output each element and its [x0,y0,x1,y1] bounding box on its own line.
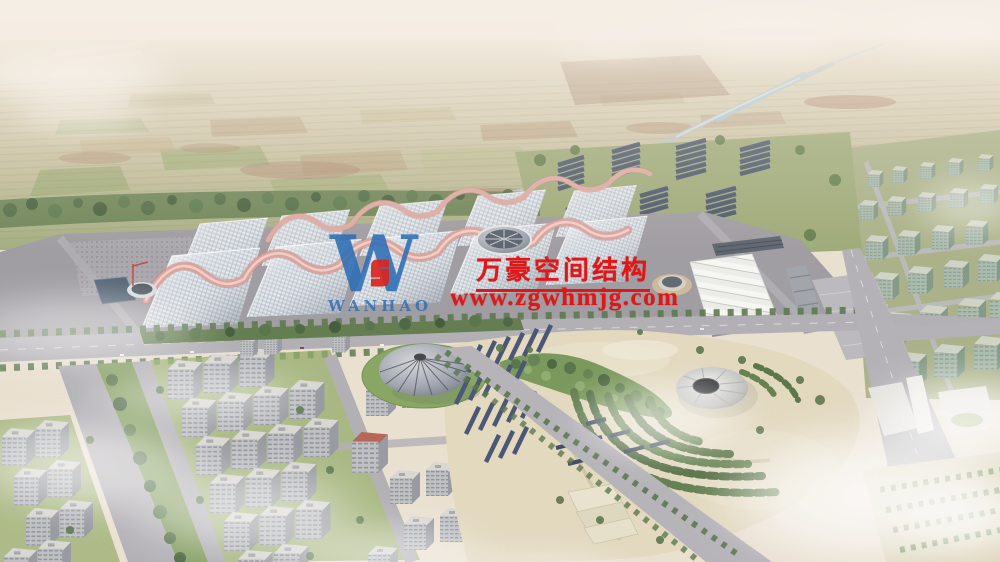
logo-wordmark: WANHAO [328,297,458,315]
watermark-website-url: www.zgwhmjg.com [450,284,679,312]
watermark-logo: W WANHAO [330,240,450,320]
orchard-rows [862,452,1000,562]
left-round-hall [127,282,157,298]
red-roof-building [352,432,388,473]
rendering-canvas: W WANHAO 万豪空间结构 www.zgwhmjg.com [0,0,1000,562]
logo-seal-icon [361,255,399,291]
